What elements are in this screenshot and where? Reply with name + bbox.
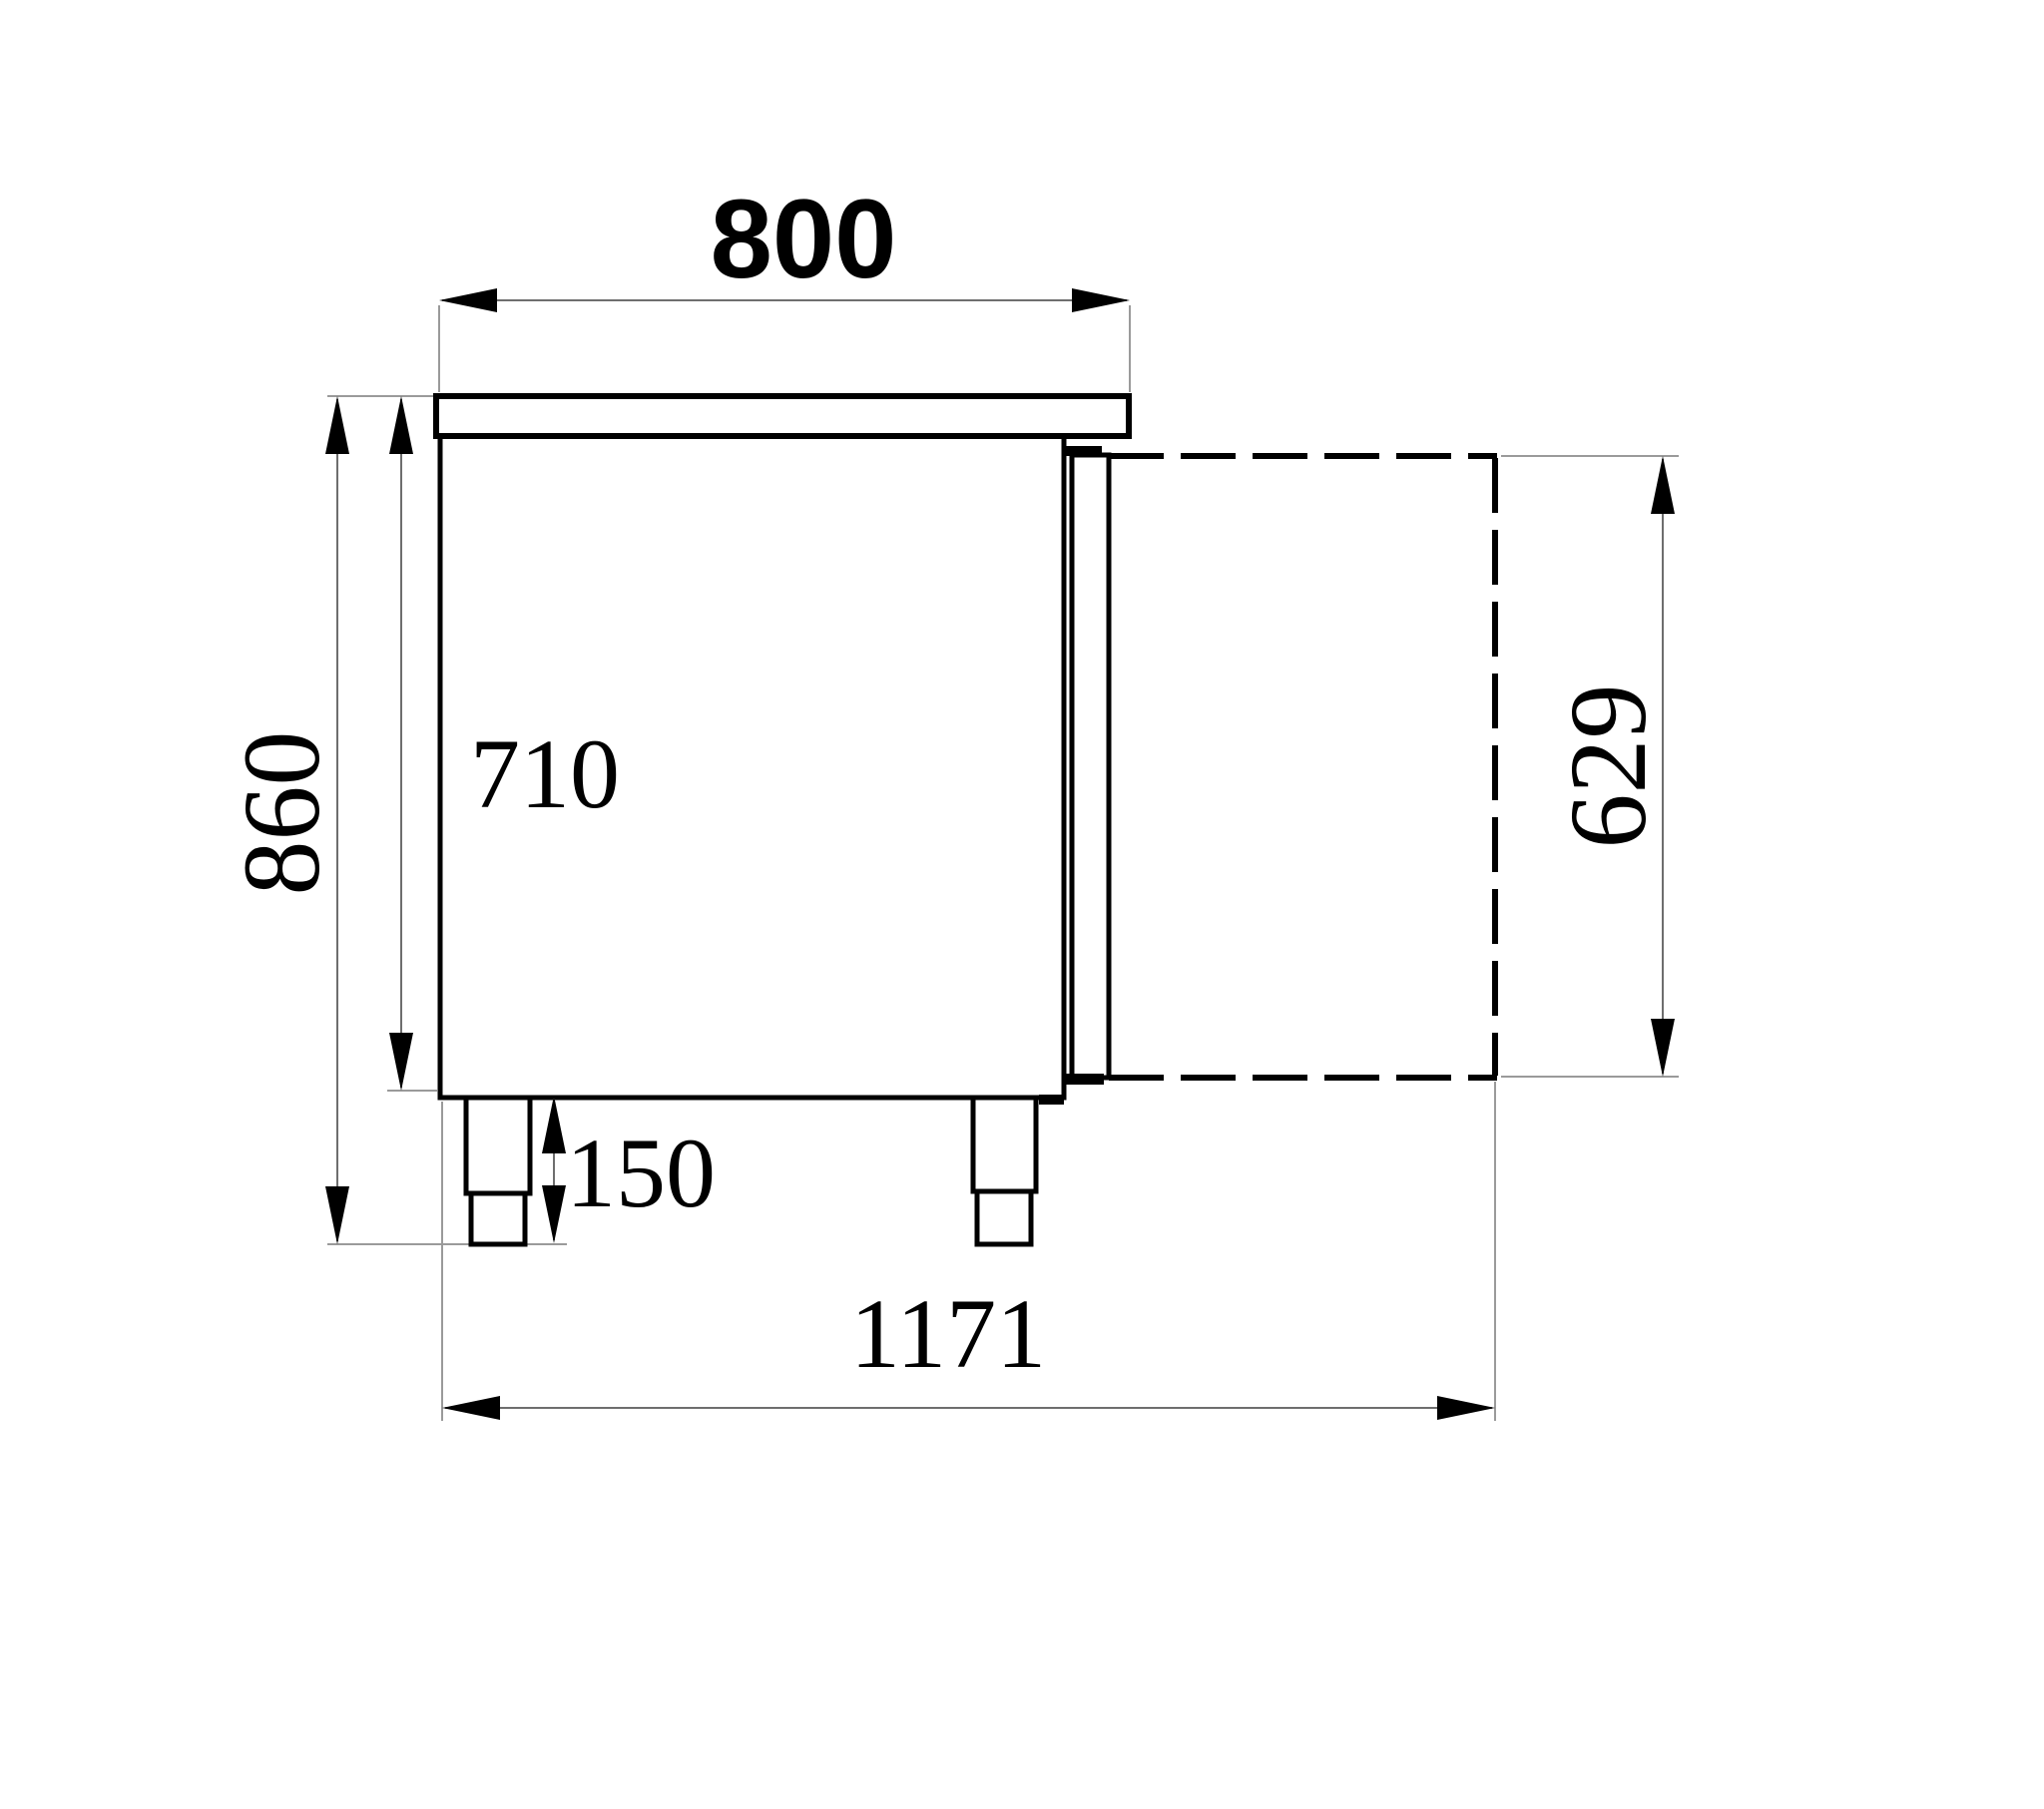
door-open-outline	[1109, 456, 1497, 1078]
rear-foot	[977, 1191, 1031, 1244]
dim-1171-arrow-left	[442, 1396, 500, 1420]
dim-1171-arrow-right	[1437, 1396, 1495, 1420]
dim-1171-label: 1171	[850, 1278, 1046, 1389]
dim-800-arrow-left	[439, 288, 497, 312]
dim-629-arrow-bottom	[1651, 1019, 1675, 1077]
technical-drawing-page: 800 860 710 629 150	[0, 0, 2044, 1809]
dim-150-label: 150	[566, 1118, 716, 1228]
dim-710-label: 710	[470, 718, 620, 829]
dim-800-arrow-right	[1072, 288, 1130, 312]
front-leg	[466, 1098, 530, 1193]
dim-800-label: 800	[711, 177, 897, 301]
dim-860-arrow-bottom	[325, 1186, 349, 1244]
door-hinge-top	[1066, 446, 1102, 456]
dimension-drawing-canvas: 800 860 710 629 150	[0, 0, 2044, 1809]
rear-leg	[973, 1098, 1036, 1191]
body-bottom-step	[1039, 1095, 1064, 1105]
dim-150-arrow-top	[542, 1096, 566, 1153]
dim-860-arrow-top	[325, 396, 349, 454]
dim-860-label: 860	[221, 731, 342, 896]
door-panel-closed	[1072, 455, 1109, 1078]
door-gasket-bottom	[1064, 1074, 1104, 1085]
front-foot	[471, 1193, 525, 1244]
dim-629-label: 629	[1547, 684, 1669, 849]
dim-710-arrow-bottom	[389, 1033, 413, 1091]
dim-629: 629	[1547, 456, 1675, 1077]
dim-710-arrow-top	[389, 396, 413, 454]
dim-150: 150	[542, 1096, 716, 1243]
dim-150-arrow-bottom	[542, 1185, 566, 1243]
dim-860: 860	[221, 396, 349, 1244]
dim-800: 800	[439, 177, 1130, 312]
counter-top	[436, 396, 1129, 436]
dim-629-arrow-top	[1651, 456, 1675, 514]
dim-1171: 1171	[442, 1278, 1495, 1420]
